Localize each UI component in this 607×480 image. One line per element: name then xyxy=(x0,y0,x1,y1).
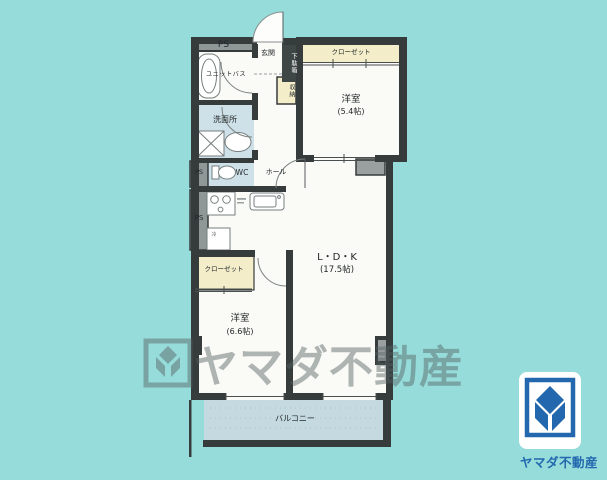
bedroom1-name-label: 洋室 xyxy=(303,95,399,106)
closet-top-label: クローゼット xyxy=(303,49,399,56)
bedroom2-name-label: 洋室 xyxy=(195,314,285,325)
company-logo-text: ヤマダ不動産 xyxy=(513,452,605,471)
storage-label: 収納 xyxy=(280,80,294,102)
watermark-text: ヤマダ不動産 xyxy=(194,331,464,395)
floorplan-drawing xyxy=(0,0,607,480)
ldk-size-label: (17.5帖) xyxy=(295,266,379,276)
ps-lower-label: PS xyxy=(190,214,208,222)
wc-label: WC xyxy=(230,169,254,178)
entrance-label: 玄関 xyxy=(253,49,283,57)
washroom-label: 洗面所 xyxy=(196,115,254,124)
ldk-name-label: L・D・K xyxy=(295,252,379,264)
hall-label: ホール xyxy=(254,169,298,177)
refrigerator-space xyxy=(207,228,230,250)
toilet-tank xyxy=(212,166,219,179)
fridge-label: 冷 xyxy=(209,233,219,239)
shoe-cabinet-label: 下駄箱 xyxy=(283,45,296,81)
ps-top-label: PS xyxy=(192,40,255,50)
ps-mid-label: PS xyxy=(190,169,208,176)
bedroom1-size-label: (5.4帖) xyxy=(303,107,399,116)
floorplan-page: PS ユニットバス 玄関 下駄箱 収納 クローゼット 洋室 (5.4帖) 洗面所… xyxy=(0,0,607,480)
balcony-label: バルコニー xyxy=(204,414,386,423)
closet-lower-label: クローゼット xyxy=(194,266,254,273)
company-logo xyxy=(519,372,581,449)
unit-bath-label: ユニットバス xyxy=(198,71,254,78)
washbasin xyxy=(225,133,251,152)
